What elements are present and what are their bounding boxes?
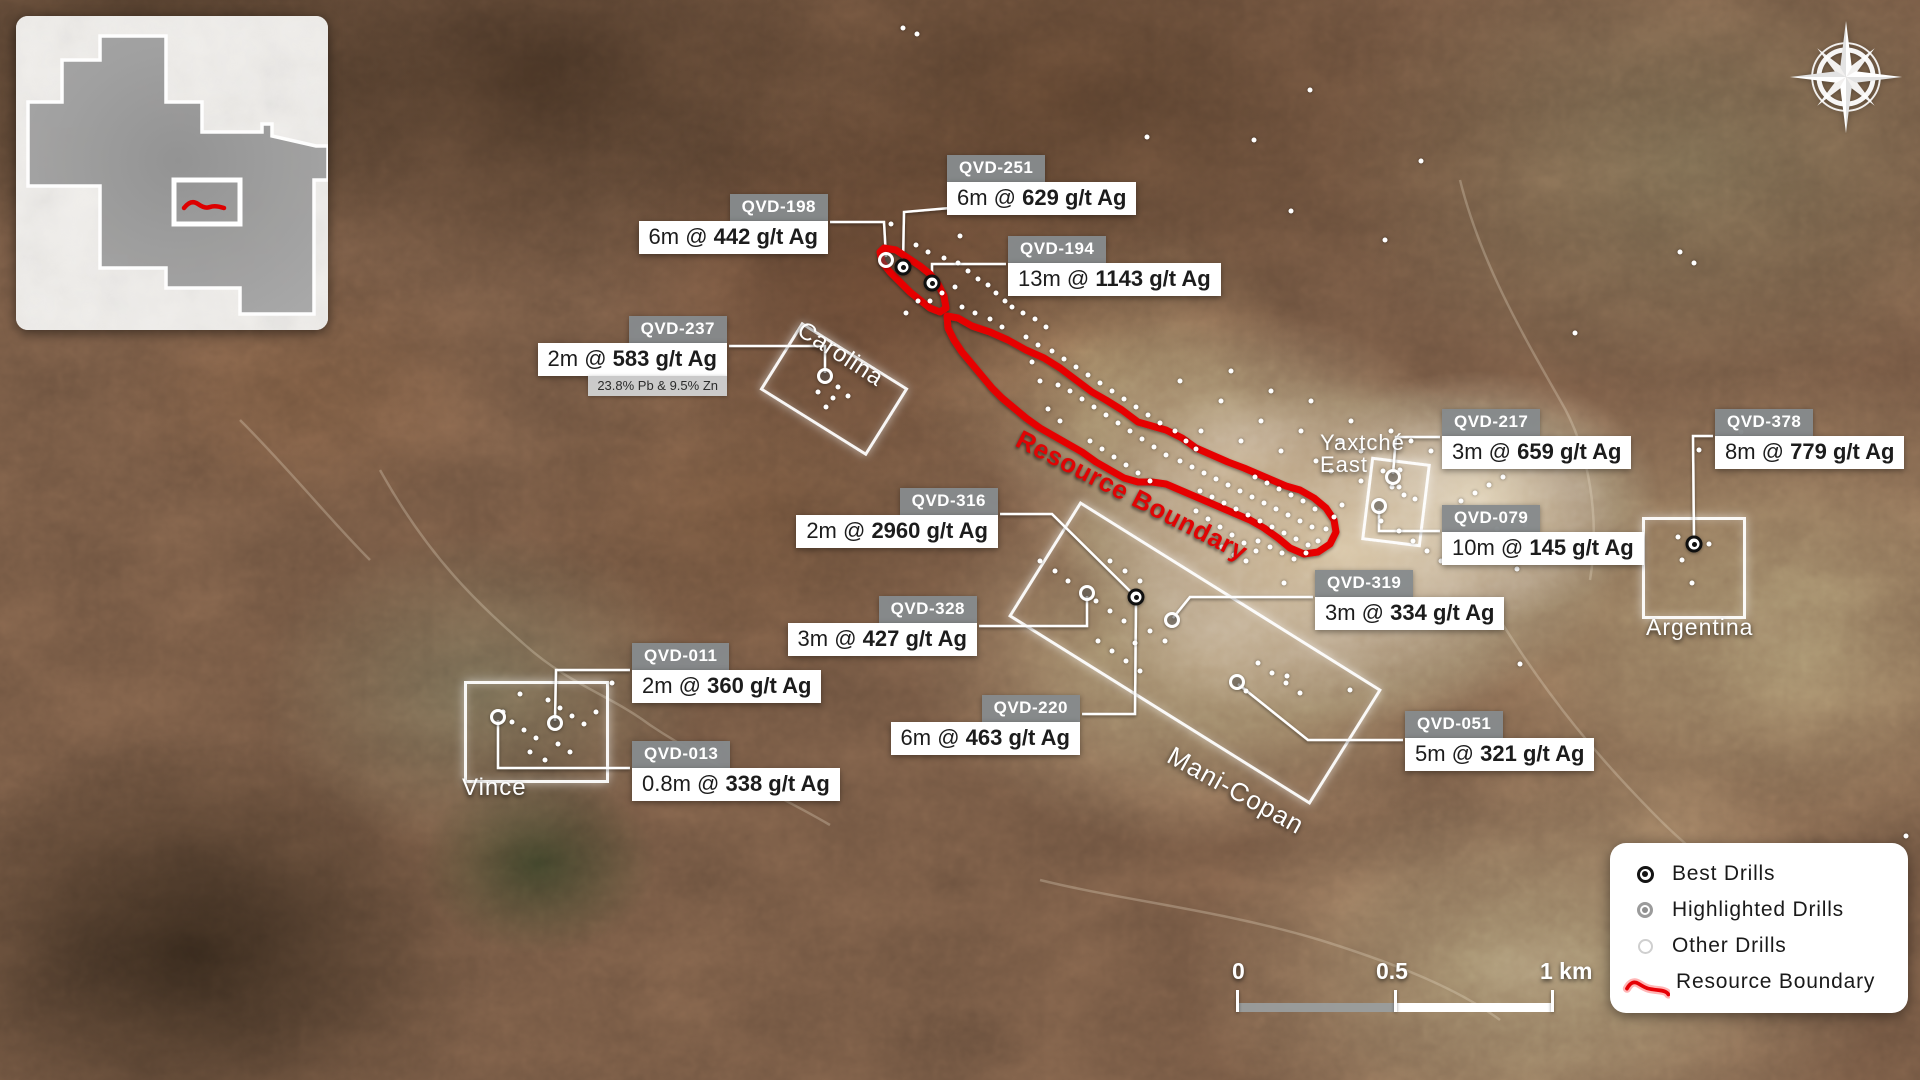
other-drill-dot bbox=[1202, 471, 1207, 476]
other-drill-dot bbox=[1286, 513, 1291, 518]
other-drill-dot bbox=[1112, 455, 1117, 460]
other-drill-dot bbox=[986, 283, 991, 288]
other-drill-dot bbox=[528, 750, 533, 755]
other-drill-dot bbox=[1573, 331, 1578, 336]
other-drill-dot bbox=[1198, 489, 1203, 494]
other-drill-dot bbox=[1253, 475, 1258, 480]
other-drill-dot bbox=[901, 26, 906, 31]
scale-tick-half bbox=[1394, 990, 1397, 1012]
other-drill-dot bbox=[1226, 483, 1231, 488]
other-drill-dot bbox=[1298, 519, 1303, 524]
other-drill-dot bbox=[1239, 439, 1244, 444]
other-drill-dot bbox=[1285, 674, 1290, 679]
legend-label-boundary: Resource Boundary bbox=[1676, 970, 1875, 994]
scale-bar: 00.51 km bbox=[1232, 958, 1612, 1022]
other-drill-dot bbox=[1419, 159, 1424, 164]
legend-item-boundary: Resource Boundary bbox=[1610, 964, 1908, 1000]
other-drill-dot bbox=[1262, 501, 1267, 506]
other-drill-dot bbox=[1707, 542, 1712, 547]
other-drill-dot bbox=[1000, 325, 1005, 330]
other-drill-dot bbox=[1402, 493, 1407, 498]
other-drill-dot bbox=[1163, 639, 1168, 644]
other-drill-dot bbox=[916, 299, 921, 304]
other-drill-dot bbox=[1277, 487, 1282, 492]
inset-locator-map bbox=[16, 16, 328, 330]
leader-line-qvd-220 bbox=[1082, 600, 1136, 714]
other-drill-dot bbox=[1098, 381, 1103, 386]
zone-label-argentina: Argentina bbox=[1646, 616, 1753, 639]
leader-line-qvd-079 bbox=[1379, 509, 1440, 531]
leader-line-qvd-013 bbox=[498, 720, 630, 768]
other-drill-dot bbox=[1270, 671, 1275, 676]
best-drill-symbol bbox=[924, 275, 941, 292]
callout-intercept-qvd-319: 3m @ 334 g/t Ag bbox=[1315, 597, 1504, 630]
legend-symbol-boundary-icon bbox=[1622, 965, 1670, 999]
callout-intercept-qvd-217: 3m @ 659 g/t Ag bbox=[1442, 436, 1631, 469]
other-drill-dot bbox=[1033, 317, 1038, 322]
best-drill-symbol bbox=[895, 259, 912, 276]
other-drill-dot bbox=[1383, 238, 1388, 243]
other-drill-dot bbox=[889, 222, 894, 227]
other-drill-dot bbox=[973, 311, 978, 316]
other-drill-dot bbox=[1094, 599, 1099, 604]
other-drill-dot bbox=[1692, 261, 1697, 266]
other-drill-dot bbox=[1030, 360, 1035, 365]
other-drill-dot bbox=[1397, 485, 1402, 490]
callout-intercept-qvd-378: 8m @ 779 g/t Ag bbox=[1715, 436, 1904, 469]
other-drill-dot bbox=[510, 720, 515, 725]
other-drill-dot bbox=[994, 291, 999, 296]
other-drill-dot bbox=[1259, 419, 1264, 424]
other-drill-dot bbox=[1246, 513, 1251, 518]
other-drill-dot bbox=[1066, 579, 1071, 584]
other-drill-dot bbox=[1515, 567, 1520, 572]
other-drill-dot bbox=[816, 390, 821, 395]
legend-panel: Best DrillsHighlighted DrillsOther Drill… bbox=[1610, 843, 1908, 1013]
other-drill-dot bbox=[1313, 507, 1318, 512]
other-drill-dot bbox=[594, 710, 599, 715]
other-drill-dot bbox=[1518, 662, 1523, 667]
other-drill-dot bbox=[836, 385, 841, 390]
callout-qvd-079: QVD-07910m @ 145 g/t Ag bbox=[1442, 505, 1644, 565]
other-drill-dot bbox=[1128, 429, 1133, 434]
other-drill-dot bbox=[1124, 659, 1129, 664]
legend-item-other: Other Drills bbox=[1610, 928, 1908, 964]
other-drill-dot bbox=[1010, 305, 1015, 310]
other-drill-dot bbox=[1390, 485, 1395, 490]
other-drill-dot bbox=[1038, 379, 1043, 384]
highlighted-drill-symbol bbox=[878, 252, 894, 268]
scale-tick-1km bbox=[1551, 990, 1554, 1012]
legend-label-highlighted: Highlighted Drills bbox=[1672, 898, 1844, 922]
other-drill-dot bbox=[1152, 445, 1157, 450]
callout-qvd-319: QVD-3193m @ 334 g/t Ag bbox=[1315, 570, 1504, 630]
other-drill-dot bbox=[1487, 483, 1492, 488]
other-drill-dot bbox=[1294, 537, 1299, 542]
callout-qvd-220: QVD-2206m @ 463 g/t Ag bbox=[891, 695, 1080, 755]
other-drill-dot bbox=[1238, 489, 1243, 494]
legend-symbol-other-icon bbox=[1632, 939, 1658, 954]
other-drill-dot bbox=[1214, 477, 1219, 482]
other-drill-dot bbox=[1274, 507, 1279, 512]
other-drill-dot bbox=[1100, 447, 1105, 452]
other-drill-dot bbox=[1309, 399, 1314, 404]
other-drill-dot bbox=[904, 311, 909, 316]
other-drill-dot bbox=[1138, 579, 1143, 584]
other-drill-dot bbox=[1050, 349, 1055, 354]
callout-intercept-qvd-013: 0.8m @ 338 g/t Ag bbox=[632, 768, 840, 801]
best-drill-symbol bbox=[1128, 589, 1145, 606]
other-drill-dot bbox=[1429, 449, 1434, 454]
highlighted-drill-symbol bbox=[1164, 612, 1180, 628]
other-drill-dot bbox=[1349, 419, 1354, 424]
other-drill-dot bbox=[1024, 335, 1029, 340]
leader-line-qvd-011 bbox=[555, 670, 630, 721]
other-drill-dot bbox=[1164, 453, 1169, 458]
other-drill-dot bbox=[953, 285, 958, 290]
other-drill-dot bbox=[1298, 691, 1303, 696]
other-drill-dot bbox=[1158, 421, 1163, 426]
other-drill-dot bbox=[543, 758, 548, 763]
callout-title-qvd-013: QVD-013 bbox=[632, 741, 730, 768]
other-drill-dot bbox=[1379, 519, 1384, 524]
other-drill-dot bbox=[1036, 343, 1041, 348]
other-drill-dot bbox=[976, 277, 981, 282]
other-drill-dot bbox=[1324, 527, 1329, 532]
other-drill-dot bbox=[558, 706, 563, 711]
other-drill-dot bbox=[1086, 373, 1091, 378]
callout-qvd-251: QVD-2516m @ 629 g/t Ag bbox=[947, 155, 1136, 215]
other-drill-dot bbox=[556, 742, 561, 747]
other-drill-dot bbox=[966, 269, 971, 274]
other-drill-dot bbox=[1046, 407, 1051, 412]
legend-item-best: Best Drills bbox=[1610, 856, 1908, 892]
other-drill-dot bbox=[1306, 543, 1311, 548]
other-drill-dot bbox=[1190, 465, 1195, 470]
other-drill-dot bbox=[1270, 525, 1275, 530]
callout-title-qvd-051: QVD-051 bbox=[1405, 711, 1503, 738]
other-drill-dot bbox=[1250, 495, 1255, 500]
callout-title-qvd-011: QVD-011 bbox=[632, 643, 729, 670]
other-drill-dot bbox=[1122, 619, 1127, 624]
best-drill-glyph bbox=[1637, 866, 1654, 883]
other-drill-dot bbox=[1110, 389, 1115, 394]
other-drill-dot bbox=[1140, 437, 1145, 442]
other-drill-dot bbox=[1038, 559, 1043, 564]
compass-cardinal-points bbox=[1790, 21, 1902, 133]
other-drill-dot bbox=[1314, 459, 1319, 464]
other-drill-dot bbox=[926, 250, 931, 255]
other-drill-dot bbox=[1096, 639, 1101, 644]
callout-intercept-qvd-198: 6m @ 442 g/t Ag bbox=[639, 221, 828, 254]
other-drill-dot bbox=[1062, 357, 1067, 362]
highlighted-drill-glyph bbox=[1637, 902, 1653, 918]
scale-tick-0 bbox=[1236, 990, 1239, 1012]
other-drill-dot bbox=[1459, 499, 1464, 504]
other-drill-dot bbox=[534, 736, 539, 741]
other-drill-dot bbox=[1134, 405, 1139, 410]
other-drill-dot bbox=[1411, 539, 1416, 544]
highlighted-drill-symbol bbox=[1229, 674, 1245, 690]
other-drill-dot bbox=[1676, 535, 1681, 540]
highlighted-drill-symbol bbox=[1079, 585, 1095, 601]
other-drill-dot bbox=[1348, 688, 1353, 693]
scale-label-0: 0 bbox=[1232, 958, 1245, 985]
legend-label-other: Other Drills bbox=[1672, 934, 1787, 958]
other-drill-dot bbox=[1056, 383, 1061, 388]
other-drill-dot bbox=[1279, 449, 1284, 454]
other-drill-dot bbox=[1310, 525, 1315, 530]
legend-symbol-best-icon bbox=[1632, 866, 1658, 883]
other-drill-dot bbox=[1265, 481, 1270, 486]
other-drill-dot bbox=[1244, 689, 1249, 694]
other-drill-dot bbox=[610, 681, 615, 686]
other-drill-dot bbox=[1256, 539, 1261, 544]
other-drill-dot bbox=[1148, 479, 1153, 484]
other-drill-dot bbox=[846, 394, 851, 399]
other-drill-dot bbox=[1133, 641, 1138, 646]
other-drill-dot bbox=[582, 722, 587, 727]
other-drill-dot bbox=[1116, 421, 1121, 426]
callout-intercept-qvd-079: 10m @ 145 g/t Ag bbox=[1442, 532, 1644, 565]
other-drill-dot bbox=[1413, 497, 1418, 502]
other-drill-dot bbox=[1108, 609, 1113, 614]
other-drill-dot bbox=[1124, 463, 1129, 468]
highlighted-drill-symbol bbox=[1371, 498, 1387, 514]
other-drill-dot bbox=[1053, 569, 1058, 574]
other-drill-dot bbox=[1234, 507, 1239, 512]
other-drill-dot bbox=[1219, 399, 1224, 404]
other-drill-dot bbox=[1184, 439, 1189, 444]
other-drill-dot bbox=[1697, 448, 1702, 453]
other-drill-dot bbox=[1473, 491, 1478, 496]
other-drill-dot bbox=[958, 234, 963, 239]
other-drill-dot bbox=[1289, 209, 1294, 214]
other-drill-dot bbox=[1199, 429, 1204, 434]
callout-title-qvd-079: QVD-079 bbox=[1442, 505, 1540, 532]
compass-rose-icon bbox=[1788, 18, 1904, 136]
callout-qvd-194: QVD-19413m @ 1143 g/t Ag bbox=[1008, 236, 1221, 296]
other-drill-dot bbox=[914, 243, 919, 248]
callout-intercept-qvd-316: 2m @ 2960 g/t Ag bbox=[796, 515, 998, 548]
other-drill-dot bbox=[1316, 539, 1321, 544]
callout-title-qvd-328: QVD-328 bbox=[879, 596, 977, 623]
scale-bar-track bbox=[1238, 1003, 1553, 1012]
other-drill-dot bbox=[1340, 503, 1345, 508]
other-drill-dot bbox=[988, 317, 993, 322]
other-drill-dot bbox=[1332, 515, 1337, 520]
callout-qvd-217: QVD-2173m @ 659 g/t Ag bbox=[1442, 409, 1631, 469]
other-drill-dot bbox=[1282, 531, 1287, 536]
other-drill-glyph bbox=[1638, 939, 1653, 954]
other-drill-dot bbox=[928, 299, 933, 304]
callout-qvd-013: QVD-0130.8m @ 338 g/t Ag bbox=[632, 741, 840, 801]
other-drill-dot bbox=[1178, 459, 1183, 464]
other-drill-dot bbox=[570, 714, 575, 719]
callout-note-qvd-237: 23.8% Pb & 9.5% Zn bbox=[588, 376, 727, 396]
other-drill-dot bbox=[1254, 549, 1259, 554]
zone-label-yaxtche-east: YaxtchéEast bbox=[1320, 432, 1405, 476]
callout-title-qvd-198: QVD-198 bbox=[730, 194, 828, 221]
legend-item-highlighted: Highlighted Drills bbox=[1610, 892, 1908, 928]
callout-qvd-237: QVD-2372m @ 583 g/t Ag23.8% Pb & 9.5% Zn bbox=[538, 316, 727, 396]
other-drill-dot bbox=[1680, 558, 1685, 563]
callout-qvd-378: QVD-3788m @ 779 g/t Ag bbox=[1715, 409, 1904, 469]
other-drill-dot bbox=[1301, 499, 1306, 504]
other-drill-dot bbox=[1304, 551, 1309, 556]
other-drill-dot bbox=[824, 405, 829, 410]
other-drill-dot bbox=[831, 396, 836, 401]
other-drill-dot bbox=[1122, 397, 1127, 402]
other-drill-dot bbox=[1058, 419, 1063, 424]
legend-label-best: Best Drills bbox=[1672, 862, 1775, 886]
other-drill-dot bbox=[1284, 681, 1289, 686]
callout-intercept-qvd-251: 6m @ 629 g/t Ag bbox=[947, 182, 1136, 215]
other-drill-dot bbox=[915, 32, 920, 37]
other-drill-dot bbox=[1003, 299, 1008, 304]
other-drill-dot bbox=[956, 261, 961, 266]
other-drill-dot bbox=[1252, 138, 1257, 143]
leader-line-qvd-319 bbox=[1173, 597, 1313, 618]
callout-title-qvd-237: QVD-237 bbox=[629, 316, 727, 343]
other-drill-dot bbox=[1044, 325, 1049, 330]
leader-line-qvd-051 bbox=[1238, 684, 1403, 740]
other-drill-dot bbox=[518, 692, 523, 697]
other-drill-dot bbox=[1088, 439, 1093, 444]
other-drill-dot bbox=[1108, 559, 1113, 564]
other-drill-dot bbox=[1148, 629, 1153, 634]
other-drill-dot bbox=[1173, 429, 1178, 434]
callout-title-qvd-217: QVD-217 bbox=[1442, 409, 1540, 436]
other-drill-dot bbox=[940, 291, 945, 296]
callout-intercept-qvd-194: 13m @ 1143 g/t Ag bbox=[1008, 263, 1221, 296]
callout-qvd-051: QVD-0515m @ 321 g/t Ag bbox=[1405, 711, 1594, 771]
other-drill-dot bbox=[1194, 447, 1199, 452]
other-drill-dot bbox=[1178, 379, 1183, 384]
other-drill-dot bbox=[1244, 559, 1249, 564]
other-drill-dot bbox=[1409, 439, 1414, 444]
other-drill-dot bbox=[1690, 581, 1695, 586]
scale-bar-segment-gray bbox=[1238, 1003, 1395, 1012]
other-drill-dot bbox=[1229, 369, 1234, 374]
callout-title-qvd-251: QVD-251 bbox=[947, 155, 1045, 182]
other-drill-dot bbox=[568, 750, 573, 755]
legend-symbol-highlighted-icon bbox=[1632, 902, 1658, 918]
zone-label-vince: Vince bbox=[462, 776, 527, 800]
other-drill-dot bbox=[1397, 529, 1402, 534]
other-drill-dot bbox=[1145, 135, 1150, 140]
callout-title-qvd-316: QVD-316 bbox=[900, 488, 998, 515]
other-drill-dot bbox=[546, 698, 551, 703]
other-drill-dot bbox=[1074, 365, 1079, 370]
callout-title-qvd-194: QVD-194 bbox=[1008, 236, 1106, 263]
other-drill-dot bbox=[1068, 389, 1073, 394]
other-drill-dot bbox=[1138, 669, 1143, 674]
other-drill-dot bbox=[1280, 551, 1285, 556]
drill-results-map: CarolinaVinceMani-CopanArgentinaYaxtchéE… bbox=[0, 0, 1920, 1080]
other-drill-dot bbox=[1210, 495, 1215, 500]
callout-qvd-198: QVD-1986m @ 442 g/t Ag bbox=[639, 194, 828, 254]
callout-intercept-qvd-237: 2m @ 583 g/t Ag bbox=[538, 343, 727, 376]
other-drill-dot bbox=[1021, 311, 1026, 316]
other-drill-dot bbox=[1292, 557, 1297, 562]
other-drill-dot bbox=[1269, 389, 1274, 394]
other-drill-dot bbox=[1268, 545, 1273, 550]
highlighted-drill-symbol bbox=[817, 368, 833, 384]
callout-title-qvd-378: QVD-378 bbox=[1715, 409, 1813, 436]
other-drill-dot bbox=[1425, 549, 1430, 554]
other-drill-dot bbox=[1080, 397, 1085, 402]
other-drill-dot bbox=[1501, 475, 1506, 480]
callout-intercept-qvd-011: 2m @ 360 g/t Ag bbox=[632, 670, 821, 703]
other-drill-dot bbox=[1222, 501, 1227, 506]
callout-intercept-qvd-051: 5m @ 321 g/t Ag bbox=[1405, 738, 1594, 771]
other-drill-dot bbox=[1308, 88, 1313, 93]
other-drill-dot bbox=[1146, 413, 1151, 418]
highlighted-drill-symbol bbox=[490, 709, 506, 725]
callout-intercept-qvd-220: 6m @ 463 g/t Ag bbox=[891, 722, 1080, 755]
other-drill-dot bbox=[1282, 581, 1287, 586]
other-drill-dot bbox=[1258, 519, 1263, 524]
leader-line-qvd-378 bbox=[1693, 436, 1713, 541]
best-drill-symbol bbox=[1686, 536, 1703, 553]
other-drill-dot bbox=[1299, 429, 1304, 434]
other-drill-dot bbox=[942, 256, 947, 261]
other-drill-dot bbox=[522, 728, 527, 733]
callout-title-qvd-319: QVD-319 bbox=[1315, 570, 1413, 597]
leader-line-qvd-328 bbox=[979, 596, 1087, 626]
scale-label-2: 1 km bbox=[1540, 958, 1592, 985]
highlighted-drill-symbol bbox=[547, 715, 563, 731]
other-drill-dot bbox=[1110, 649, 1115, 654]
other-drill-dot bbox=[1123, 569, 1128, 574]
callout-title-qvd-220: QVD-220 bbox=[982, 695, 1080, 722]
scale-label-1: 0.5 bbox=[1376, 958, 1408, 985]
other-drill-dot bbox=[1904, 834, 1909, 839]
other-drill-dot bbox=[1092, 405, 1097, 410]
other-drill-dot bbox=[1678, 250, 1683, 255]
callout-qvd-011: QVD-0112m @ 360 g/t Ag bbox=[632, 643, 821, 703]
other-drill-dot bbox=[1104, 413, 1109, 418]
other-drill-dot bbox=[1359, 479, 1364, 484]
other-drill-dot bbox=[960, 305, 965, 310]
other-drill-dot bbox=[1289, 493, 1294, 498]
other-drill-dot bbox=[1136, 471, 1141, 476]
callout-qvd-316: QVD-3162m @ 2960 g/t Ag bbox=[796, 488, 998, 548]
scale-bar-segment-white bbox=[1395, 1003, 1553, 1012]
other-drill-dot bbox=[1256, 661, 1261, 666]
